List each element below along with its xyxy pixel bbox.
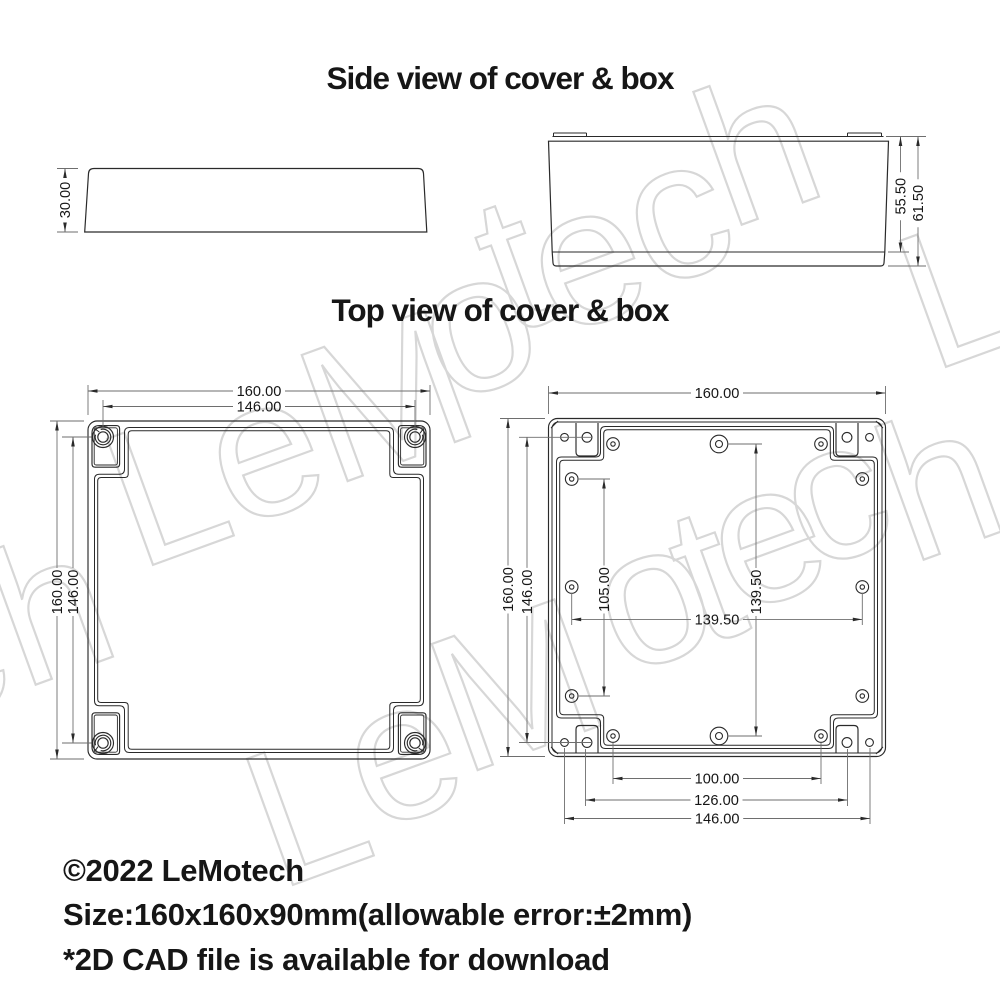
svg-text:126.00: 126.00 [694, 793, 739, 809]
svg-text:Top view of cover & box: Top view of cover & box [332, 292, 670, 328]
svg-text:160.00: 160.00 [50, 570, 66, 615]
svg-text:100.00: 100.00 [695, 772, 740, 788]
svg-text:146.00: 146.00 [66, 570, 82, 615]
svg-text:160.00: 160.00 [501, 567, 517, 612]
svg-text:55.50: 55.50 [894, 178, 910, 215]
svg-text:61.50: 61.50 [911, 185, 927, 222]
svg-text:146.00: 146.00 [695, 812, 740, 828]
svg-text:139.50: 139.50 [749, 570, 765, 615]
svg-text:30.00: 30.00 [58, 182, 74, 219]
svg-text:*2D CAD file is available for: *2D CAD file is available for download [63, 942, 610, 977]
svg-text:105.00: 105.00 [597, 567, 613, 612]
svg-text:Side view of cover & box: Side view of cover & box [326, 60, 675, 96]
svg-text:146.00: 146.00 [237, 400, 282, 416]
svg-text:Size:160x160x90mm(allowable er: Size:160x160x90mm(allowable error:±2mm) [63, 897, 692, 932]
svg-text:146.00: 146.00 [520, 570, 536, 615]
svg-text:©2022 LeMotech: ©2022 LeMotech [63, 853, 304, 888]
svg-text:160.00: 160.00 [695, 386, 740, 402]
svg-text:160.00: 160.00 [237, 384, 282, 400]
svg-text:139.50: 139.50 [695, 613, 740, 629]
